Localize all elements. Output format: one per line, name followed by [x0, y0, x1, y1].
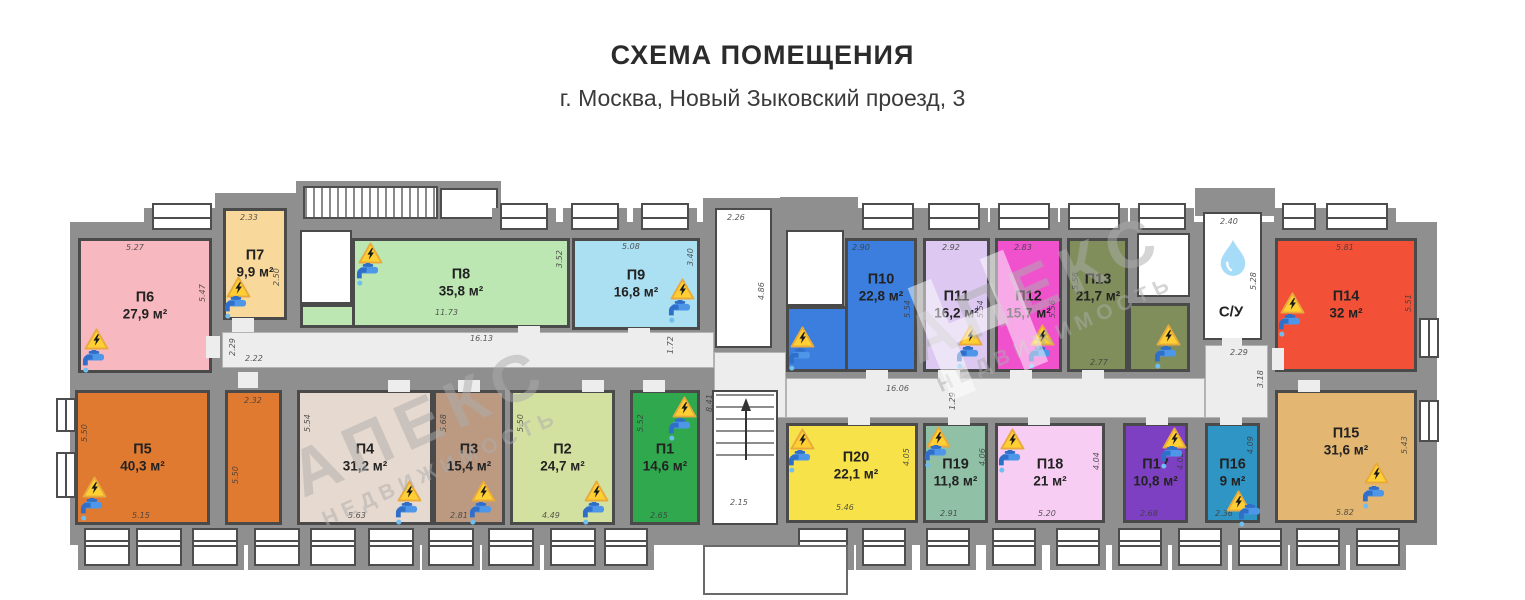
dimension-label: 5.47	[198, 284, 207, 302]
dimension-label: 2.92	[942, 243, 960, 252]
room-label: П1821 м²	[1033, 456, 1066, 491]
electric-warning-icon	[226, 276, 251, 298]
room-label: П431,2 м²	[343, 440, 388, 475]
stair-upper	[715, 208, 772, 348]
dimension-label: 2.29	[1230, 348, 1248, 357]
water-tap-icon	[666, 300, 693, 323]
window	[1138, 203, 1186, 230]
room-area: 22,8 м²	[859, 289, 904, 306]
room-area: 31,6 м²	[1324, 443, 1369, 460]
electric-warning-icon	[1364, 462, 1389, 484]
door-opening-18	[1146, 413, 1168, 425]
door-opening-0	[206, 336, 220, 358]
door-opening-12	[458, 380, 480, 392]
window	[550, 528, 596, 566]
dimension-label: 2.22	[245, 354, 263, 363]
door-opening-20	[1298, 380, 1320, 392]
corridor-segment-2	[786, 378, 1205, 418]
water-tap-icon	[354, 263, 381, 286]
room-label: П916,8 м²	[614, 267, 659, 302]
dimension-label: 5.54	[303, 414, 312, 432]
dimension-label: 4.04	[1092, 452, 1101, 470]
room-area: 9 м²	[1219, 474, 1246, 491]
dimension-label: 16.06	[886, 384, 909, 393]
water-tap-icon	[666, 418, 693, 441]
electric-warning-icon	[790, 428, 815, 450]
electric-warning-icon	[1000, 428, 1025, 450]
room-area: 27,9 м²	[123, 306, 168, 323]
room-number: П15	[1324, 425, 1369, 443]
window	[1238, 528, 1282, 566]
water-tap-icon	[467, 502, 494, 525]
room-area: 16,8 м²	[614, 285, 659, 302]
dimension-label: 5.63	[348, 511, 366, 520]
window	[928, 203, 980, 230]
room-number: П5	[120, 440, 165, 458]
dimension-label: 5.51	[1404, 294, 1413, 312]
room-area: 21 м²	[1033, 474, 1066, 491]
door-opening-8	[1272, 348, 1284, 370]
dimension-label: 5.82	[1336, 508, 1354, 517]
door-opening-3	[628, 328, 650, 340]
window	[310, 528, 356, 566]
room-number: П12	[1006, 288, 1051, 306]
dimension-label: 2.15	[730, 498, 748, 507]
door-opening-14	[643, 380, 665, 392]
utility-3	[1137, 233, 1190, 297]
water-tap-icon	[922, 445, 949, 468]
room-label: П1432 м²	[1329, 288, 1362, 323]
window	[1419, 318, 1439, 358]
electric-warning-icon	[1156, 324, 1181, 346]
water-tap-icon	[996, 450, 1023, 473]
dimension-label: 5.81	[1336, 243, 1354, 252]
dimension-label: 16.13	[470, 334, 493, 343]
dimension-label: 1.29	[948, 392, 957, 410]
room-area: 21,7 м²	[1076, 289, 1121, 306]
dimension-label: 2.91	[940, 509, 958, 518]
room-label: П114,6 м²	[643, 440, 688, 475]
room-area: 16,2 м²	[934, 306, 979, 323]
dimension-label: 11.73	[435, 308, 458, 317]
room-label: П835,8 м²	[439, 266, 484, 301]
door-opening-5	[938, 370, 960, 382]
exterior-stairs-0	[303, 186, 438, 219]
dimension-label: 5.58	[1071, 272, 1080, 290]
room-label: П1215,7 м²	[1006, 288, 1051, 323]
dimension-label: 2.83	[1014, 243, 1032, 252]
window	[1326, 203, 1388, 230]
water-tap-icon	[786, 450, 813, 473]
room-number: П1	[643, 440, 688, 458]
dimension-label: 2.33	[240, 213, 258, 222]
room-area: 15,4 м²	[447, 458, 492, 475]
dimension-label: 3.52	[555, 250, 564, 268]
door-opening-11	[388, 380, 410, 392]
dimension-label: 2.32	[244, 396, 262, 405]
water-tap-icon	[222, 296, 249, 319]
dimension-label: 4.06	[978, 448, 987, 466]
window	[254, 528, 300, 566]
window	[1419, 400, 1439, 442]
wall-block-4	[780, 197, 858, 225]
utility-2	[786, 230, 844, 306]
electric-warning-icon	[584, 480, 609, 502]
dimension-label: 5.27	[126, 243, 144, 252]
electric-warning-icon	[82, 476, 107, 498]
water-tap-icon	[393, 502, 420, 525]
electric-warning-icon	[790, 326, 815, 348]
dimension-label: 5.54	[976, 300, 985, 318]
room-number: П18	[1033, 456, 1066, 474]
dimension-label: 2.68	[1140, 509, 1158, 518]
dimension-label: 2.81	[450, 511, 468, 520]
room-number: П3	[447, 440, 492, 458]
room-label: П2022,1 м²	[834, 449, 879, 484]
water-tap-icon	[580, 502, 607, 525]
room-number: П20	[834, 449, 879, 467]
dimension-label: 5.43	[1400, 436, 1409, 454]
window	[56, 398, 76, 432]
window	[368, 528, 414, 566]
room-label: П1531,6 м²	[1324, 425, 1369, 460]
room-label: П224,7 м²	[540, 440, 585, 475]
dimension-label: 3.18	[1256, 370, 1265, 388]
room-label: П315,4 м²	[447, 440, 492, 475]
window	[84, 528, 130, 566]
door-opening-17	[1028, 413, 1050, 425]
electric-warning-icon	[471, 480, 496, 502]
door-opening-1	[232, 318, 254, 332]
bathroom-label: С/У	[1219, 304, 1243, 321]
dimension-label: 5.54	[903, 300, 912, 318]
window	[571, 203, 619, 230]
room-number: П6	[123, 288, 168, 306]
dimension-label: 2.50	[272, 268, 281, 286]
window	[1068, 203, 1120, 230]
window	[1282, 203, 1316, 230]
window	[641, 203, 689, 230]
dimension-label: 5.52	[636, 414, 645, 432]
electric-warning-icon	[84, 328, 109, 350]
electric-warning-icon	[1280, 292, 1305, 314]
water-tap-icon	[1276, 314, 1303, 337]
dimension-label: 3.40	[686, 248, 695, 266]
room-label: П1116,2 м²	[934, 288, 979, 323]
room-area: 22,1 м²	[834, 467, 879, 484]
dimension-label: 5.28	[1249, 272, 1258, 290]
window	[428, 528, 474, 566]
floor-plan-page: СХЕМА ПОМЕЩЕНИЯ г. Москва, Новый Зыковск…	[0, 0, 1525, 600]
room-area: 40,3 м²	[120, 458, 165, 475]
room-area: 11,8 м²	[934, 474, 978, 491]
door-opening-19	[1220, 413, 1242, 425]
dimension-label: 5.50	[231, 466, 240, 484]
dimension-label: 4.86	[757, 282, 766, 300]
dimension-label: 2.90	[852, 243, 870, 252]
water-tap-icon	[786, 348, 813, 371]
window	[1118, 528, 1162, 566]
room-number: П9	[614, 267, 659, 285]
electric-warning-icon	[397, 480, 422, 502]
electric-warning-icon	[670, 278, 695, 300]
door-opening-16	[948, 413, 970, 425]
window	[862, 203, 914, 230]
window	[136, 528, 182, 566]
dimension-label: 5.50	[516, 414, 525, 432]
room-area: 10,8 м²	[1133, 474, 1178, 491]
room-number: П8	[439, 266, 484, 284]
room-number: П4	[343, 440, 388, 458]
door-opening-15	[848, 413, 870, 425]
dimension-label: 4.05	[902, 448, 911, 466]
dimension-label: 4.49	[542, 511, 560, 520]
room-label: П540,3 м²	[120, 440, 165, 475]
dimension-label: 5.56	[1048, 300, 1057, 318]
room-area: 14,6 м²	[643, 458, 688, 475]
water-tap-icon	[1152, 346, 1179, 369]
window	[1296, 528, 1340, 566]
room-area: 32 м²	[1329, 306, 1362, 323]
electric-warning-icon	[358, 242, 383, 264]
door-opening-6	[1010, 370, 1032, 382]
dimension-label: 5.46	[836, 503, 854, 512]
dimension-label: 8.41	[705, 394, 714, 412]
room-number: П14	[1329, 288, 1362, 306]
window	[500, 203, 548, 230]
window	[926, 528, 970, 566]
window	[1356, 528, 1400, 566]
room-number: П16	[1219, 456, 1246, 474]
water-tap-icon	[80, 350, 107, 373]
door-opening-7	[1082, 370, 1104, 382]
dimension-label: 5.15	[132, 511, 150, 520]
window	[992, 528, 1036, 566]
entrance-porch	[703, 545, 848, 595]
room-area: 15,7 м²	[1006, 306, 1051, 323]
water-tap-icon	[954, 346, 981, 369]
window	[56, 452, 76, 498]
water-tap-icon	[1236, 504, 1263, 527]
room-п5-wing	[225, 390, 282, 525]
dimension-label: 2.65	[650, 511, 668, 520]
room-number: П11	[934, 288, 979, 306]
room-п8-wing	[300, 304, 355, 328]
electric-warning-icon	[1030, 324, 1055, 346]
water-tap-icon	[78, 498, 105, 521]
electric-warning-icon	[672, 396, 697, 418]
floor-plan-diagram: 2.264.862.158.41С/У2.405.28П114,6 м²5.52…	[0, 0, 1525, 600]
room-number: П10	[859, 271, 904, 289]
dimension-label: 5.20	[1038, 509, 1056, 518]
room-area: 24,7 м²	[540, 458, 585, 475]
exterior-stairs-1	[440, 188, 498, 219]
dimension-label: 2.77	[1090, 358, 1108, 367]
dimension-label: 2.26	[727, 213, 745, 222]
window	[862, 528, 906, 566]
door-opening-4	[866, 370, 888, 382]
window	[604, 528, 648, 566]
water-tap-icon	[1360, 486, 1387, 509]
dimension-label: 5.08	[622, 242, 640, 251]
room-area: 31,2 м²	[343, 458, 388, 475]
door-opening-10	[238, 372, 258, 388]
window	[1178, 528, 1222, 566]
room-number: П13	[1076, 271, 1121, 289]
window	[488, 528, 534, 566]
window	[192, 528, 238, 566]
dimension-label: 5.68	[439, 414, 448, 432]
room-number: П2	[540, 440, 585, 458]
room-label: П169 м²	[1219, 456, 1246, 491]
window	[152, 203, 212, 230]
door-opening-2	[518, 326, 540, 338]
dimension-label: 2.29	[228, 338, 237, 356]
room-label: П627,9 м²	[123, 288, 168, 323]
room-area: 35,8 м²	[439, 284, 484, 301]
dimension-label: 2.40	[1220, 217, 1238, 226]
water-drop-icon	[1217, 238, 1249, 276]
dimension-label: 5.50	[80, 424, 89, 442]
window	[1056, 528, 1100, 566]
dimension-label: 4.09	[1246, 436, 1255, 454]
electric-warning-icon	[958, 324, 983, 346]
door-opening-13	[582, 380, 604, 392]
dimension-label: 1.72	[666, 336, 675, 354]
room-label: П1321,7 м²	[1076, 271, 1121, 306]
room-label: П1022,8 м²	[859, 271, 904, 306]
water-tap-icon	[1158, 446, 1185, 469]
utility-1	[300, 230, 352, 304]
stair-up-arrow-icon	[739, 398, 753, 460]
room-number: П7	[237, 247, 274, 265]
window	[998, 203, 1050, 230]
water-tap-icon	[1026, 346, 1053, 369]
